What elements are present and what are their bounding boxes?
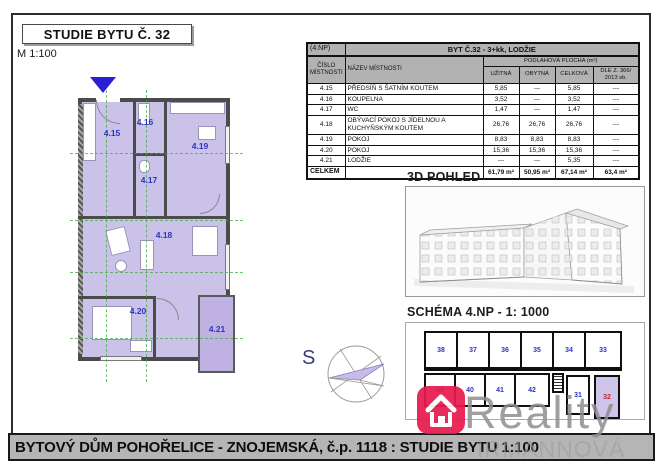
unit-34: 34 bbox=[552, 331, 586, 369]
cell: POKOJ bbox=[345, 134, 483, 145]
table-row: 4.17 WC 1,47 --- 1,47 --- bbox=[307, 105, 639, 116]
cell: --- bbox=[593, 94, 639, 105]
cell: WC bbox=[345, 105, 483, 116]
cell: --- bbox=[593, 156, 639, 167]
kitchen-counter bbox=[170, 102, 225, 114]
room-label-4-20: 4.20 bbox=[130, 306, 147, 316]
table-row: 4.20 POKOJ 15,36 15,36 15,36 --- bbox=[307, 145, 639, 156]
cell: 8,83 bbox=[519, 134, 555, 145]
room-label-4-18: 4.18 bbox=[156, 230, 173, 240]
cell: --- bbox=[519, 94, 555, 105]
total-uzitna: 61,79 m² bbox=[483, 167, 519, 179]
cell: --- bbox=[593, 116, 639, 135]
cell: --- bbox=[519, 83, 555, 94]
cell: 4.21 bbox=[307, 156, 345, 167]
cell: POKOJ bbox=[345, 145, 483, 156]
floor-plan: 4.15 4.16 4.17 4.18 4.19 4.20 4.21 bbox=[78, 98, 235, 378]
corridor-line bbox=[424, 369, 622, 371]
unit-38: 38 bbox=[424, 331, 458, 369]
total-label: CELKEM bbox=[307, 167, 345, 179]
cell: 1,47 bbox=[555, 105, 593, 116]
cell: 8,83 bbox=[555, 134, 593, 145]
cell: 4.19 bbox=[307, 134, 345, 145]
col-dle-z: DLE Z. 366/ 2013 sb. bbox=[593, 66, 639, 83]
table-row: 4.16 KOUPELNA 3,52 --- 3,52 --- bbox=[307, 94, 639, 105]
footer-text: BYTOVÝ DŮM POHOŘELICE - ZNOJEMSKÁ, č.p. … bbox=[15, 439, 539, 456]
cell: 1,47 bbox=[483, 105, 519, 116]
unit-35: 35 bbox=[520, 331, 554, 369]
table-row: 4.18 OBÝVACÍ POKOJ S JÍDELNOU A KUCHYŇSK… bbox=[307, 116, 639, 135]
cell: --- bbox=[593, 145, 639, 156]
entrance-arrow-icon bbox=[90, 77, 116, 93]
round-table bbox=[115, 260, 127, 272]
cell: 4.15 bbox=[307, 83, 345, 94]
cell: 8,83 bbox=[483, 134, 519, 145]
col-celkova: CELKOVÁ bbox=[555, 66, 593, 83]
cell: 4.16 bbox=[307, 94, 345, 105]
schema-title: SCHÉMA 4.NP - 1: 1000 bbox=[407, 305, 549, 319]
cell: LODŽIE bbox=[345, 156, 483, 167]
cell: 15,36 bbox=[555, 145, 593, 156]
table-row: 4.19 POKOJ 8,83 8,83 8,83 --- bbox=[307, 134, 639, 145]
cell: 4.20 bbox=[307, 145, 345, 156]
cell: --- bbox=[593, 105, 639, 116]
cell: 26,76 bbox=[483, 116, 519, 135]
bed bbox=[92, 306, 132, 340]
interior-wall bbox=[164, 98, 167, 218]
cell: 4.17 bbox=[307, 105, 345, 116]
table-row: 4.21 LODŽIE --- --- 5,35 --- bbox=[307, 156, 639, 167]
table-row: 4.15 PŘEDSÍŇ S ŠATNÍM KOUTEM 5,85 --- 5,… bbox=[307, 83, 639, 94]
cell: 3,52 bbox=[555, 94, 593, 105]
north-letter: S bbox=[302, 347, 315, 369]
dining-table bbox=[192, 226, 218, 256]
loggia-outline bbox=[198, 295, 235, 373]
grid-line bbox=[70, 338, 243, 339]
window bbox=[225, 244, 230, 290]
room-label-4-21: 4.21 bbox=[209, 324, 226, 334]
total-obytna: 50,95 m² bbox=[519, 167, 555, 179]
page-title: STUDIE BYTU Č. 32 bbox=[22, 24, 192, 44]
area-table-panel: (4.NP) BYT Č.32 - 3+kk, LODŽIE ČÍSLO MÍS… bbox=[306, 42, 638, 180]
cell: 15,36 bbox=[483, 145, 519, 156]
room-label-4-15: 4.15 bbox=[104, 128, 121, 138]
table bbox=[198, 126, 216, 140]
grid-line bbox=[70, 220, 243, 221]
cell: 15,36 bbox=[519, 145, 555, 156]
interior-wall bbox=[133, 98, 136, 218]
cell: --- bbox=[593, 134, 639, 145]
interior-wall bbox=[153, 296, 156, 361]
grid-line bbox=[70, 272, 243, 273]
watermark-company: IRMANNOVÁ s.r.o. bbox=[477, 436, 663, 468]
cell: --- bbox=[519, 156, 555, 167]
desk bbox=[130, 340, 152, 352]
view3d-title: 3D POHLED bbox=[407, 170, 480, 184]
cell: 5,35 bbox=[555, 156, 593, 167]
cell: 5,85 bbox=[483, 83, 519, 94]
col-floor-area-group: PODLAHOVÁ PLOCHA (m²) bbox=[483, 56, 639, 66]
cell: --- bbox=[593, 83, 639, 94]
unit-33: 33 bbox=[584, 331, 622, 369]
room-label-4-17: 4.17 bbox=[141, 175, 158, 185]
watermark-brand: Reality bbox=[464, 387, 616, 439]
document-page: STUDIE BYTU Č. 32 M 1:100 bbox=[0, 0, 663, 468]
cell: 5,85 bbox=[555, 83, 593, 94]
window bbox=[225, 126, 230, 164]
cell: 26,76 bbox=[519, 116, 555, 135]
cell: 3,52 bbox=[483, 94, 519, 105]
area-table: (4.NP) BYT Č.32 - 3+kk, LODŽIE ČÍSLO MÍS… bbox=[306, 42, 640, 180]
scale-label: M 1:100 bbox=[17, 48, 57, 60]
col-room-no: ČÍSLO MÍSTNOSTI bbox=[307, 56, 345, 83]
view3d-image bbox=[405, 186, 645, 297]
compass-rose: S bbox=[298, 336, 398, 408]
unit-37: 37 bbox=[456, 331, 490, 369]
apartment-title-cell: BYT Č.32 - 3+kk, LODŽIE bbox=[345, 43, 639, 56]
floor-cell: (4.NP) bbox=[307, 43, 345, 56]
col-obytna: OBYTNÁ bbox=[519, 66, 555, 83]
cell: 26,76 bbox=[555, 116, 593, 135]
total-dle-z: 63,4 m² bbox=[593, 167, 639, 179]
interior-wall bbox=[78, 216, 230, 219]
building-3d-wireframe bbox=[406, 187, 644, 296]
interior-wall bbox=[78, 296, 156, 299]
cell: KOUPELNA bbox=[345, 94, 483, 105]
reality-logo-icon bbox=[417, 386, 465, 434]
col-uzitna: UŽITNÁ bbox=[483, 66, 519, 83]
total-celkova: 67,14 m² bbox=[555, 167, 593, 179]
cell: 4.18 bbox=[307, 116, 345, 135]
cell: PŘEDSÍŇ S ŠATNÍM KOUTEM bbox=[345, 83, 483, 94]
toilet bbox=[139, 160, 150, 173]
cell: OBÝVACÍ POKOJ S JÍDELNOU A KUCHYŇSKÝM KO… bbox=[345, 116, 483, 135]
cell: --- bbox=[483, 156, 519, 167]
col-room-name: NÁZEV MÍSTNOSTI bbox=[345, 56, 483, 83]
room-label-4-16: 4.16 bbox=[137, 117, 154, 127]
grid-line bbox=[70, 153, 243, 154]
unit-36: 36 bbox=[488, 331, 522, 369]
room-label-4-19: 4.19 bbox=[192, 141, 209, 151]
cell: --- bbox=[519, 105, 555, 116]
cabinet bbox=[140, 240, 154, 270]
